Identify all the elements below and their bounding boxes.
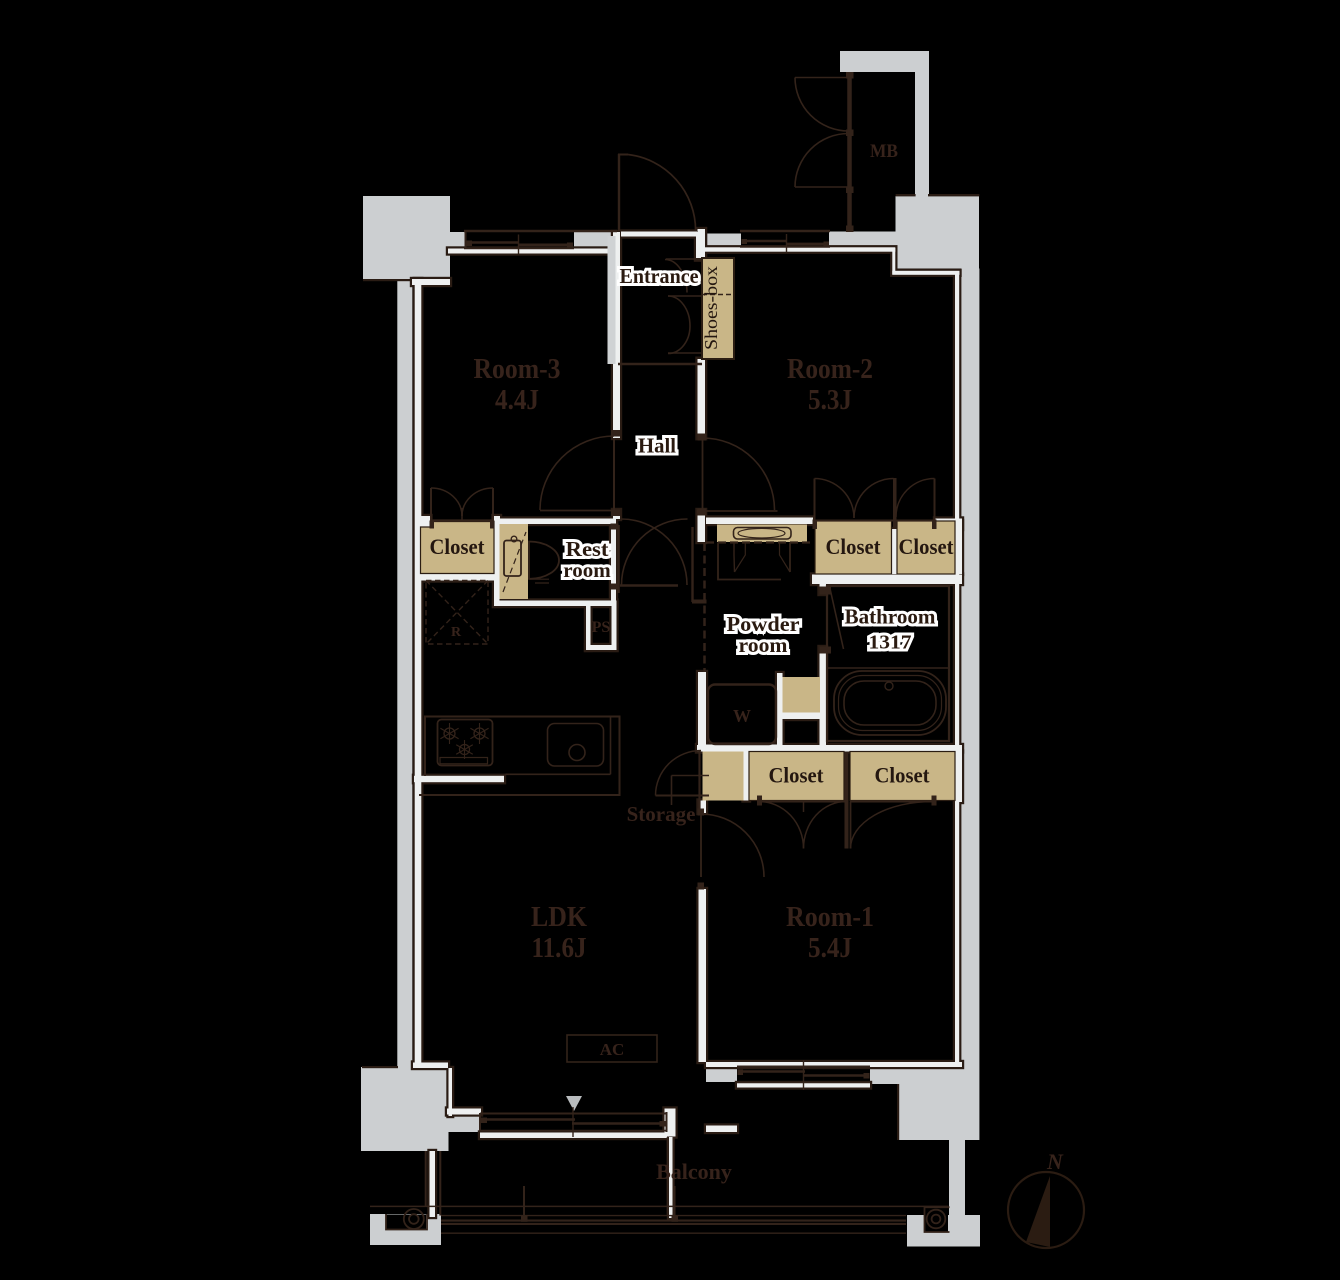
svg-text:Storage: Storage	[627, 802, 696, 826]
svg-text:room: room	[739, 633, 788, 657]
svg-text:R: R	[451, 625, 462, 640]
svg-text:1317: 1317	[869, 632, 912, 654]
svg-text:5.3J: 5.3J	[808, 384, 852, 416]
svg-text:N: N	[1046, 1149, 1064, 1174]
svg-text:Closet: Closet	[875, 763, 931, 788]
svg-text:Hall: Hall	[638, 434, 676, 458]
svg-text:room: room	[563, 558, 611, 582]
svg-text:Closet: Closet	[430, 534, 486, 559]
svg-text:Shoes-box: Shoes-box	[701, 266, 721, 350]
svg-text:Closet: Closet	[826, 534, 882, 559]
svg-text:5.4J: 5.4J	[808, 932, 852, 964]
svg-text:Closet: Closet	[769, 763, 825, 788]
svg-text:LDK: LDK	[531, 901, 587, 933]
svg-text:Bathroom: Bathroom	[845, 605, 936, 629]
svg-text:Balcony: Balcony	[656, 1159, 732, 1184]
svg-text:W: W	[733, 706, 751, 726]
svg-text:Room-1: Room-1	[786, 901, 874, 933]
svg-text:11.6J: 11.6J	[532, 932, 587, 964]
svg-text:Room-2: Room-2	[787, 353, 873, 385]
svg-text:MB: MB	[870, 141, 898, 162]
svg-text:AC: AC	[600, 1040, 625, 1059]
svg-text:4.4J: 4.4J	[495, 384, 539, 416]
svg-text:Room-3: Room-3	[474, 353, 561, 385]
svg-text:PS: PS	[592, 619, 611, 636]
svg-text:Closet: Closet	[899, 534, 955, 559]
svg-text:Entrance: Entrance	[620, 264, 699, 288]
